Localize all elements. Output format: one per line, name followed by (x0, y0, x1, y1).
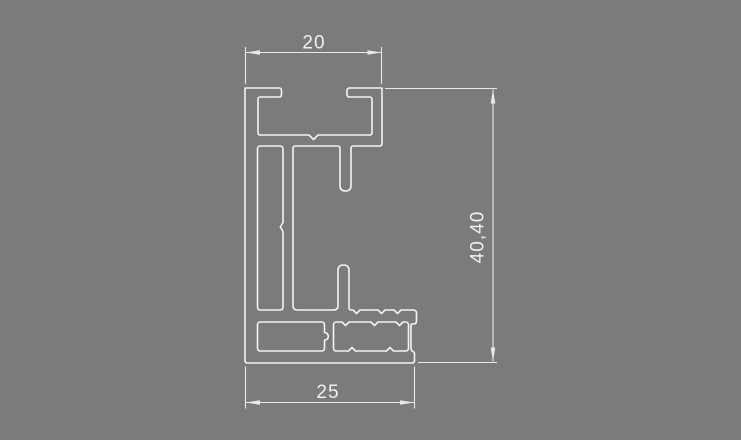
profile-cross-section (245, 88, 417, 363)
cad-canvas: 20 25 40,40 (0, 0, 741, 440)
dimension-top-width: 20 (246, 33, 382, 85)
dimension-bottom-width: 25 (246, 367, 415, 409)
dimension-arrow (246, 50, 260, 55)
dimension-value-top-width: 20 (302, 33, 325, 54)
profile-drawing: 20 25 40,40 (0, 0, 741, 440)
dimension-arrow (368, 50, 382, 55)
dimension-arrow (246, 400, 260, 405)
left-chamber-void (258, 146, 284, 310)
dimension-arrow (400, 400, 414, 405)
dimension-height: 40,40 (385, 89, 497, 363)
dimension-value-height: 40,40 (468, 211, 489, 264)
dimension-arrow (491, 348, 496, 362)
dimension-value-bottom-width: 25 (316, 382, 339, 403)
dimension-arrow (491, 90, 496, 104)
bottom-right-slot-void (334, 322, 409, 351)
bottom-left-chamber-void (258, 322, 329, 351)
